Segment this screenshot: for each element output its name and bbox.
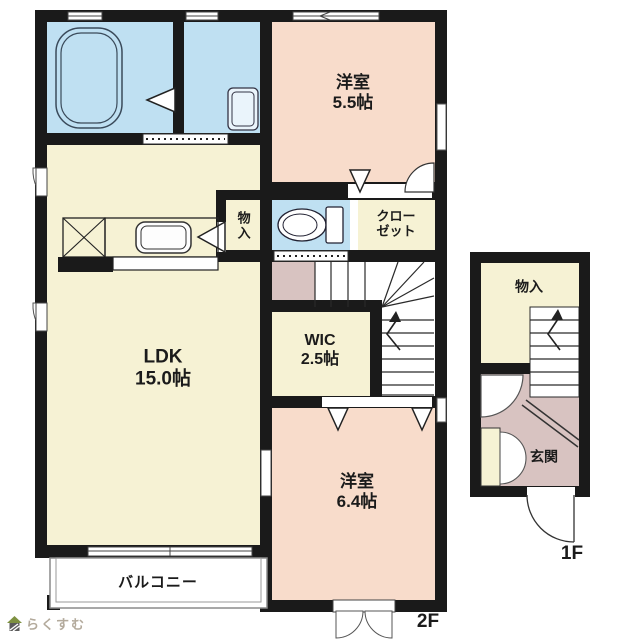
room64-casement-left: [336, 611, 363, 638]
room-name: 物入: [235, 211, 250, 241]
floor-label-1f: 1F: [561, 543, 583, 565]
room-name: ゼット: [376, 224, 415, 239]
room-label-storage-1f: 物入: [515, 279, 543, 296]
room-label-entrance: 玄関: [530, 449, 558, 466]
room-label-western-64: 洋室 6.4帖: [337, 472, 378, 512]
window-right-1: [437, 104, 446, 150]
hall-2f-area: [272, 262, 315, 302]
wall-1f-left: [470, 252, 481, 497]
room-size: 6.4帖: [337, 492, 378, 512]
room-label-closet: クロー ゼット: [376, 209, 415, 240]
wall-wic-right: [370, 307, 382, 398]
toilet-tank: [326, 207, 343, 243]
room-name: 玄関: [530, 449, 558, 466]
toilet-door: [274, 251, 348, 261]
room-name: 洋室: [337, 472, 378, 492]
wall-wic-top: [260, 300, 382, 312]
wall-left: [35, 10, 47, 558]
room-size: 15.0帖: [135, 369, 191, 391]
shoe-cabinet: [481, 428, 500, 486]
room-size: 5.5帖: [333, 93, 374, 113]
rakusumu-logo: らくすむ: [7, 614, 86, 633]
kitchen-wall-stub: [58, 257, 113, 272]
room-name: 物入: [515, 279, 543, 296]
floor-label-2f: 2F: [417, 611, 439, 633]
room-label-ldk: LDK 15.0帖: [135, 347, 191, 392]
room-label-balcony: バルコニー: [118, 574, 198, 592]
room-name: LDK: [135, 347, 191, 369]
room-label-wic: WIC 2.5帖: [301, 332, 339, 370]
room-name: クロー: [376, 209, 415, 224]
room64-window: [333, 600, 395, 612]
room-size: 2.5帖: [301, 351, 339, 370]
entrance-door-arc: [527, 495, 574, 542]
floorplan-page: 洋室 5.5帖 物入 クロー ゼット WIC 2.5帖 LDK 15.0帖 洋室…: [0, 0, 640, 640]
rakusumu-logo-text: らくすむ: [26, 614, 86, 633]
room64-casement-right: [365, 611, 392, 638]
room-name: WIC: [301, 332, 339, 351]
room-name: バルコニー: [118, 574, 198, 592]
ldk-room64-sliding-door: [261, 450, 271, 496]
casement-window-left-2-frame: [36, 303, 47, 331]
wall-1f-right: [579, 252, 590, 497]
wall-right: [435, 10, 447, 612]
wall-1f-storage-bottom: [481, 363, 530, 374]
room-name: 洋室: [333, 73, 374, 93]
floorplan-drawing: [0, 0, 640, 640]
casement-window-left-1-frame: [36, 168, 47, 196]
accordion-door-wash: [143, 134, 228, 144]
wall-1f-top: [470, 252, 590, 263]
window-right-2: [437, 398, 446, 422]
entrance-door-gap: [527, 487, 575, 497]
rakusumu-logo-icon: [7, 616, 22, 631]
room-label-storage-2f: 物入: [235, 211, 250, 241]
wall-bath-wash: [173, 22, 184, 133]
room64-door-gap: [322, 397, 432, 407]
room-label-western-55: 洋室 5.5帖: [333, 73, 374, 113]
kitchen-counter-front: [113, 257, 218, 270]
